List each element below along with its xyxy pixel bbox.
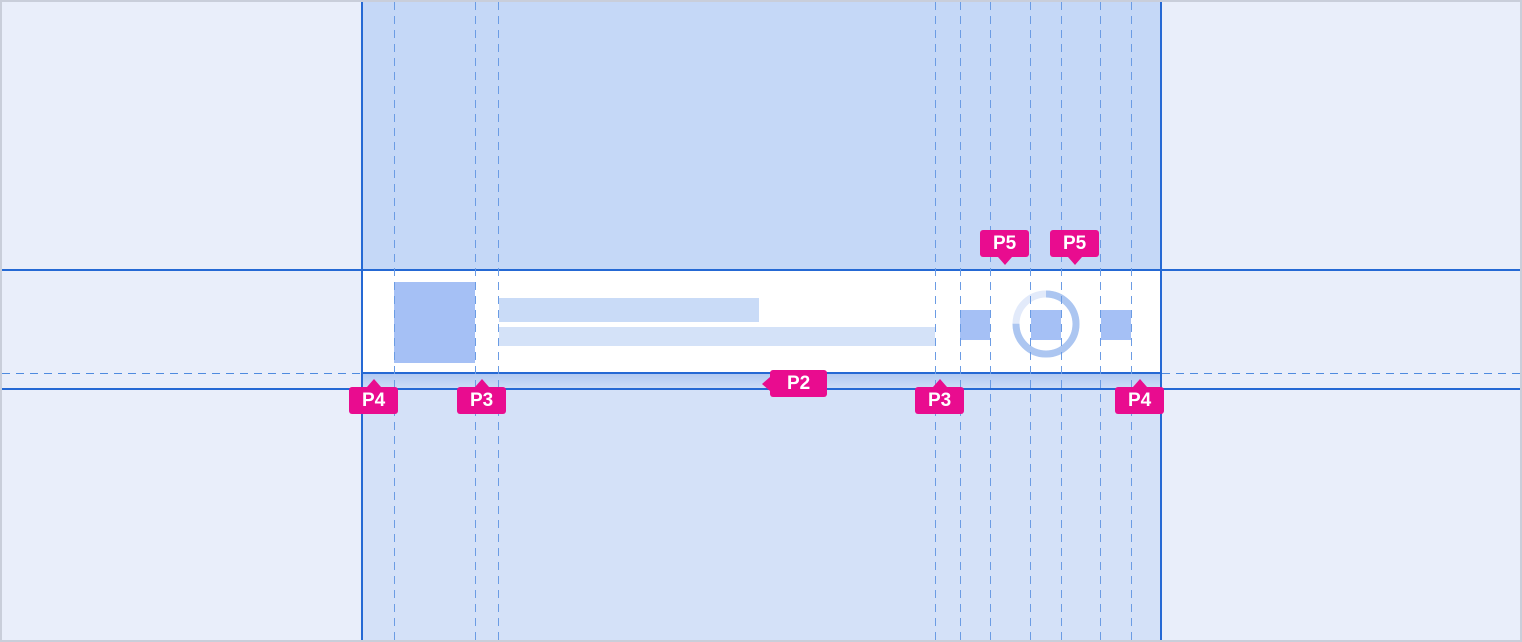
spec-label-text: P2	[787, 374, 810, 393]
vertical-guide	[960, 2, 961, 642]
component-column-lower-zone	[361, 389, 1160, 642]
avatar-placeholder	[394, 282, 475, 363]
pointer-up-icon	[367, 379, 381, 387]
spec-canvas: P5 P5 P2 P4 P3 P3 P4	[0, 0, 1522, 642]
row-top-line	[2, 269, 1520, 271]
spec-label-text: P5	[993, 234, 1016, 253]
subtitle-line-placeholder	[499, 327, 935, 346]
vertical-guide	[475, 2, 476, 642]
spec-label-text: P3	[928, 391, 951, 410]
vertical-guide	[1030, 2, 1031, 642]
vertical-guide	[990, 2, 991, 642]
column-left-edge-line	[361, 2, 363, 642]
spec-label-p3-right: P3	[915, 387, 964, 414]
pointer-down-icon	[998, 257, 1012, 265]
spec-label-text: P4	[362, 391, 385, 410]
trailing-icon-placeholder	[1101, 310, 1131, 340]
spec-label-p3-left: P3	[457, 387, 506, 414]
vertical-guide	[394, 2, 395, 642]
spec-label-text: P3	[470, 391, 493, 410]
trailing-icon-placeholder	[960, 310, 990, 340]
spec-label-p2: P2	[770, 370, 827, 397]
vertical-guide	[1131, 2, 1132, 642]
pointer-up-icon	[1133, 379, 1147, 387]
vertical-guide	[935, 2, 936, 642]
pointer-up-icon	[475, 379, 489, 387]
baseline	[2, 388, 1520, 390]
column-right-edge-line	[1160, 2, 1162, 642]
vertical-guide	[1100, 2, 1101, 642]
spec-label-p5-left: P5	[980, 230, 1029, 257]
spec-label-p4-right: P4	[1115, 387, 1164, 414]
vertical-guide	[498, 2, 499, 642]
pointer-left-icon	[762, 377, 770, 391]
spec-label-p5-right: P5	[1050, 230, 1099, 257]
title-line-placeholder	[499, 298, 759, 322]
spec-label-p4-left: P4	[349, 387, 398, 414]
progress-ring-icon	[1011, 289, 1081, 359]
spec-label-text: P4	[1128, 391, 1151, 410]
component-column-upper-zone	[361, 2, 1160, 270]
horizontal-guide	[1162, 373, 1520, 374]
pointer-up-icon	[933, 379, 947, 387]
pointer-down-icon	[1068, 257, 1082, 265]
row-bottom-line	[361, 372, 1160, 374]
horizontal-guide	[2, 373, 361, 374]
spec-label-text: P5	[1063, 234, 1086, 253]
vertical-guide	[1061, 2, 1062, 642]
